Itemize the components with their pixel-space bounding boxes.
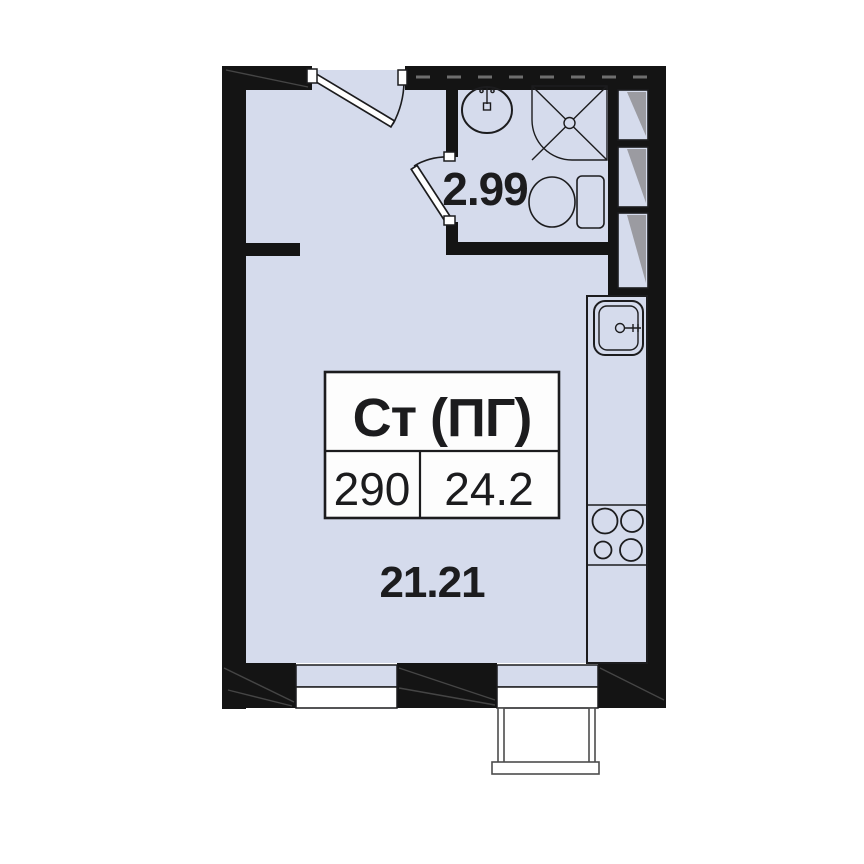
balcony-rail-left [498,708,504,764]
window-outer-pane [497,687,598,708]
unit-number: 290 [334,463,411,515]
window-outer-pane [296,687,397,708]
bathroom-wall-bottom [446,242,618,255]
shaft-divider [618,207,648,213]
unit-total-area: 24.2 [444,463,534,515]
bathroom-wall-left-upper [446,90,458,157]
wall-right [648,66,666,708]
window-2 [497,665,598,708]
wall-bottom-mid [397,663,497,708]
window-inner-pane [296,665,397,687]
balcony-rail-right [589,708,595,764]
vent-shafts [618,90,648,288]
floor-plan-page: Ст (ПГ) 290 24.2 2.99 21.21 [0,0,864,864]
toilet-icon [529,176,604,228]
unit-type-label: Ст (ПГ) [353,388,532,448]
kitchen [587,296,647,663]
left-wall-stub [246,243,300,256]
wall-left [222,66,246,709]
window-inner-pane [497,665,598,687]
door-jamb [307,69,317,83]
window-1 [296,665,397,708]
floor-plan: Ст (ПГ) 290 24.2 2.99 21.21 [0,0,864,864]
wall-bottom-right [598,663,666,708]
balcony [492,708,599,774]
door-jamb [444,216,455,225]
door-jamb [444,152,455,161]
shaft-divider [618,140,648,147]
balcony-slab [492,762,599,774]
unit-info-box: Ст (ПГ) 290 24.2 [325,372,559,518]
bathroom-area-label: 2.99 [442,163,528,215]
door-jamb [398,70,407,85]
bathroom-wall-right [608,90,618,297]
room-area-label: 21.21 [379,558,485,607]
